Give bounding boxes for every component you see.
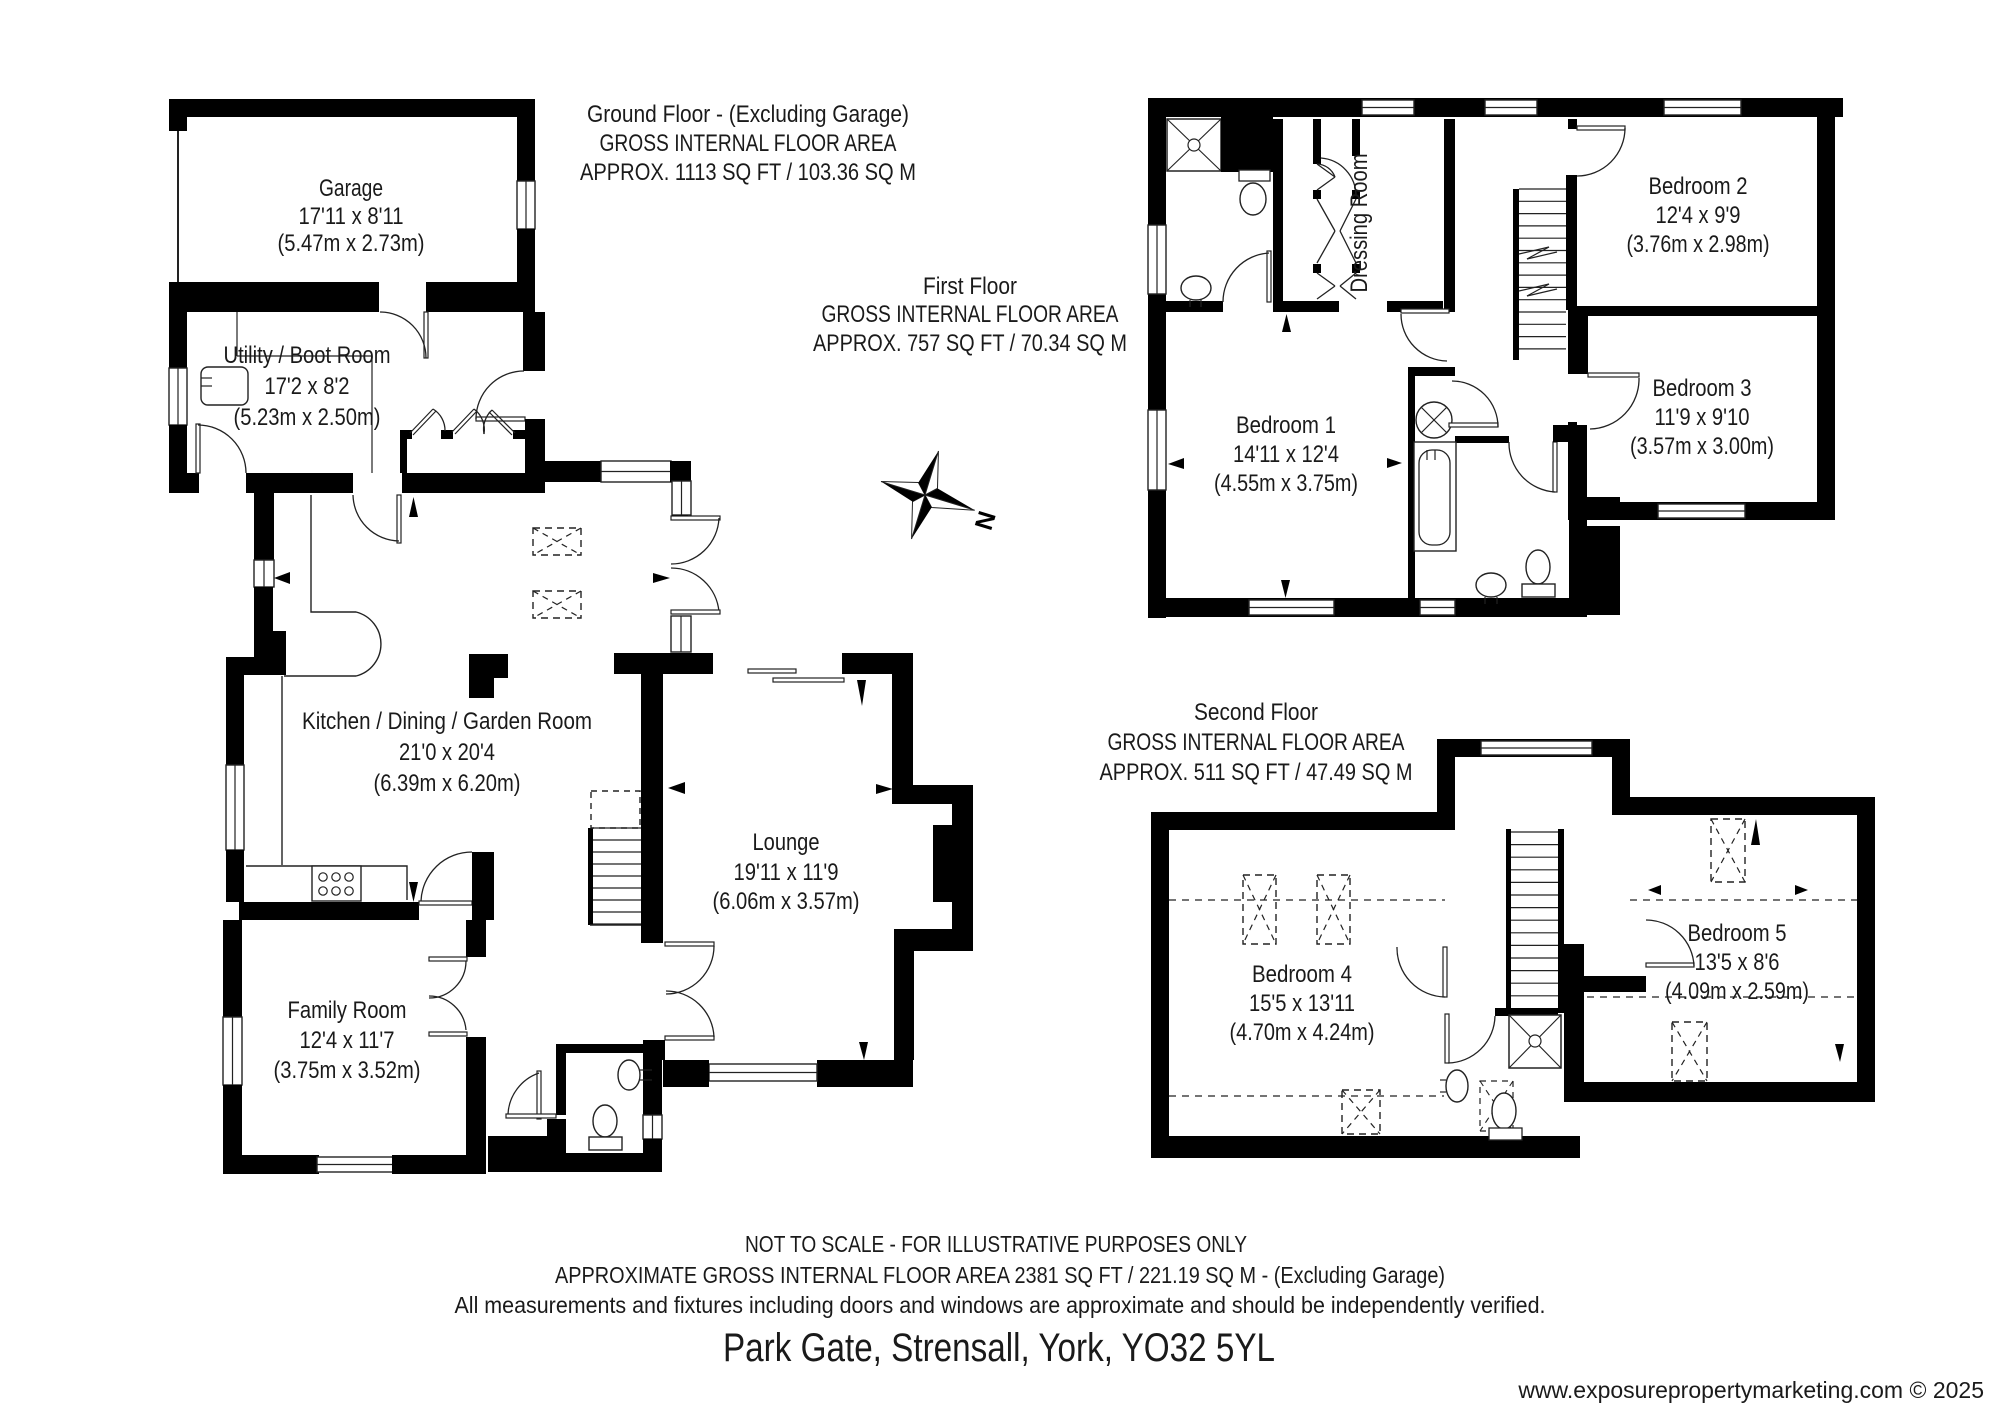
svg-text:17'2 x 8'2: 17'2 x 8'2 [265, 373, 350, 400]
svg-text:(6.39m x 6.20m): (6.39m x 6.20m) [374, 770, 521, 797]
svg-text:(5.23m x 2.50m): (5.23m x 2.50m) [234, 404, 381, 431]
svg-text:Ground Floor - (Excluding Gara: Ground Floor - (Excluding Garage) [587, 101, 909, 128]
svg-text:Bedroom 3: Bedroom 3 [1653, 375, 1752, 402]
svg-text:(4.55m x 3.75m): (4.55m x 3.75m) [1214, 470, 1358, 497]
svg-text:Bedroom 4: Bedroom 4 [1252, 961, 1352, 988]
svg-text:APPROX. 757 SQ FT / 70.34 SQ M: APPROX. 757 SQ FT / 70.34 SQ M [813, 330, 1127, 357]
svg-text:(3.57m x 3.00m): (3.57m x 3.00m) [1630, 433, 1774, 460]
svg-text:(3.76m x 2.98m): (3.76m x 2.98m) [1627, 231, 1770, 258]
svg-text:12'4 x 9'9: 12'4 x 9'9 [1656, 202, 1741, 229]
svg-text:APPROXIMATE GROSS INTERNAL FLO: APPROXIMATE GROSS INTERNAL FLOOR AREA 23… [555, 1262, 1445, 1288]
svg-text:14'11 x 12'4: 14'11 x 12'4 [1233, 441, 1339, 468]
svg-text:Utility / Boot Room: Utility / Boot Room [224, 342, 391, 369]
svg-text:(6.06m x 3.57m): (6.06m x 3.57m) [713, 888, 860, 915]
svg-text:Lounge: Lounge [753, 829, 820, 856]
svg-text:NOT TO SCALE - FOR ILLUSTRATIV: NOT TO SCALE - FOR ILLUSTRATIVE PURPOSES… [745, 1231, 1247, 1257]
svg-text:Bedroom 1: Bedroom 1 [1236, 412, 1336, 439]
svg-text:Second Floor: Second Floor [1194, 699, 1318, 726]
svg-text:(4.09m x 2.59m): (4.09m x 2.59m) [1665, 978, 1809, 1005]
svg-text:Bedroom 2: Bedroom 2 [1649, 173, 1748, 200]
svg-text:21'0 x 20'4: 21'0 x 20'4 [399, 739, 495, 766]
svg-text:17'11 x 8'11: 17'11 x 8'11 [299, 203, 404, 230]
svg-text:All measurements and fixtures: All measurements and fixtures including … [455, 1292, 1546, 1318]
svg-text:GROSS INTERNAL FLOOR AREA: GROSS INTERNAL FLOOR AREA [600, 130, 897, 157]
svg-text:(3.75m x 3.52m): (3.75m x 3.52m) [274, 1057, 421, 1084]
svg-text:Dressing Room: Dressing Room [1346, 154, 1373, 293]
svg-text:APPROX. 511 SQ FT / 47.49 SQ M: APPROX. 511 SQ FT / 47.49 SQ M [1100, 759, 1413, 786]
svg-text:www.exposurepropertymarketing.: www.exposurepropertymarketing.com © 2025 [1517, 1377, 1984, 1403]
svg-text:Kitchen / Dining / Garden Room: Kitchen / Dining / Garden Room [302, 708, 592, 735]
svg-text:13'5 x 8'6: 13'5 x 8'6 [1695, 949, 1780, 976]
svg-text:APPROX. 1113 SQ FT / 103.36 SQ: APPROX. 1113 SQ FT / 103.36 SQ M [580, 159, 916, 186]
svg-text:Park Gate, Strensall, York, YO: Park Gate, Strensall, York, YO32 5YL [723, 1326, 1275, 1370]
svg-text:(5.47m x 2.73m): (5.47m x 2.73m) [278, 230, 425, 257]
svg-text:15'5 x 13'11: 15'5 x 13'11 [1249, 990, 1355, 1017]
svg-text:Garage: Garage [319, 175, 383, 202]
svg-text:GROSS INTERNAL FLOOR AREA: GROSS INTERNAL FLOOR AREA [822, 301, 1119, 328]
svg-text:(4.70m x 4.24m): (4.70m x 4.24m) [1230, 1019, 1375, 1046]
svg-text:12'4 x 11'7: 12'4 x 11'7 [300, 1027, 395, 1054]
svg-text:GROSS INTERNAL FLOOR AREA: GROSS INTERNAL FLOOR AREA [1108, 729, 1405, 756]
svg-text:11'9 x 9'10: 11'9 x 9'10 [1655, 404, 1750, 431]
svg-text:First Floor: First Floor [923, 273, 1017, 300]
svg-text:Family Room: Family Room [288, 997, 407, 1024]
svg-text:Bedroom 5: Bedroom 5 [1688, 920, 1787, 947]
svg-text:19'11 x 11'9: 19'11 x 11'9 [734, 859, 839, 886]
